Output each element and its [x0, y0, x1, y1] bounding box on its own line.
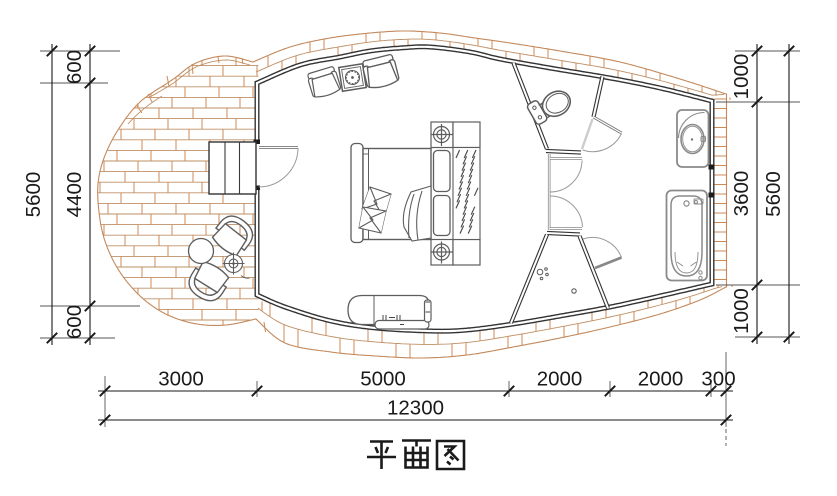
svg-text:12300: 12300 — [387, 397, 444, 420]
svg-text:5600: 5600 — [22, 172, 45, 218]
svg-text:600: 600 — [63, 50, 86, 84]
svg-text:3000: 3000 — [158, 368, 204, 391]
svg-text:1000: 1000 — [730, 288, 753, 334]
svg-text:2000: 2000 — [537, 368, 583, 391]
svg-text:600: 600 — [63, 305, 86, 339]
svg-text:1000: 1000 — [730, 54, 753, 100]
svg-text:300: 300 — [701, 368, 735, 391]
svg-text:5000: 5000 — [360, 368, 406, 391]
svg-text:5600: 5600 — [762, 171, 785, 217]
svg-text:3600: 3600 — [730, 171, 753, 217]
svg-text:2000: 2000 — [638, 368, 684, 391]
svg-text:4400: 4400 — [63, 172, 86, 218]
